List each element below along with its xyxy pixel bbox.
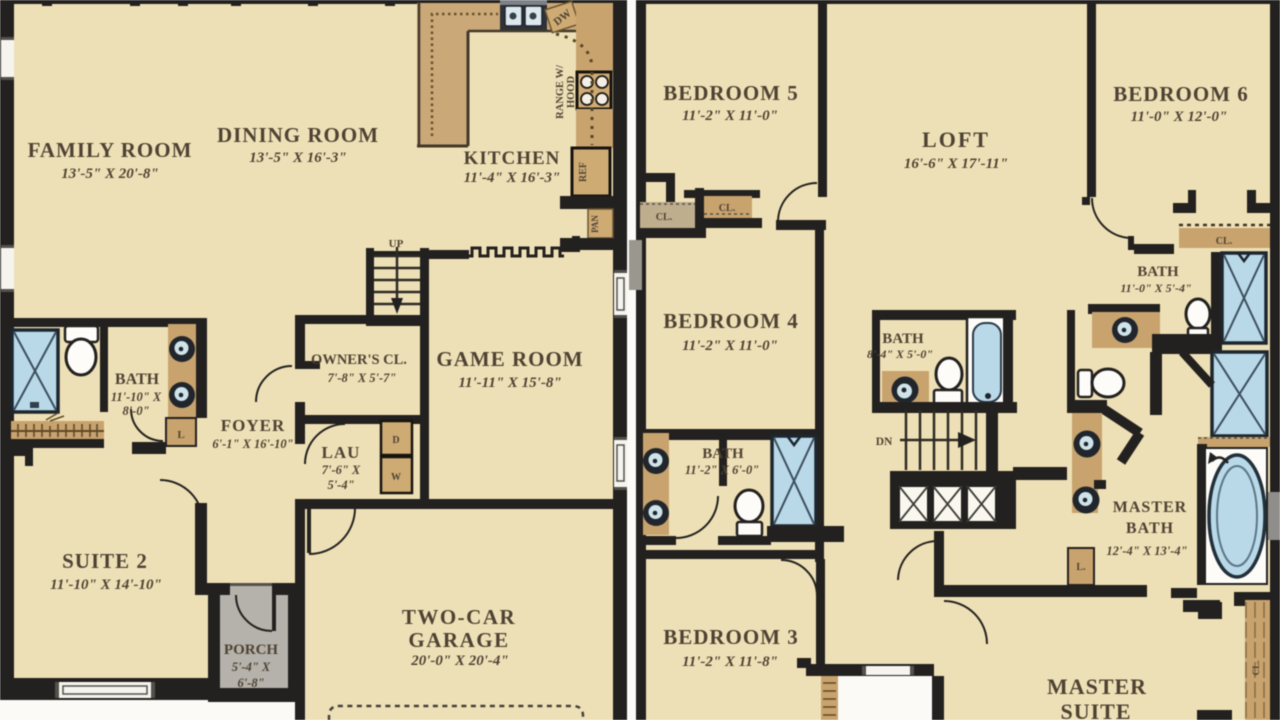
svg-text:BATH: BATH <box>1137 264 1179 280</box>
svg-text:REF: REF <box>578 162 589 182</box>
svg-text:L: L <box>177 429 184 441</box>
svg-text:CL.: CL. <box>719 203 736 214</box>
svg-text:BEDROOM 5: BEDROOM 5 <box>663 81 799 105</box>
svg-text:OWNER'S CL.: OWNER'S CL. <box>311 352 407 368</box>
svg-text:TWO-CAR: TWO-CAR <box>402 605 516 629</box>
svg-text:DINING ROOM: DINING ROOM <box>217 123 379 147</box>
svg-text:SUITE 2: SUITE 2 <box>62 549 148 573</box>
svg-text:DN: DN <box>876 436 893 448</box>
svg-text:HOOD: HOOD <box>566 76 577 109</box>
svg-text:MASTER: MASTER <box>1113 499 1187 516</box>
svg-text:RANGE W/: RANGE W/ <box>555 64 566 119</box>
svg-text:MASTER: MASTER <box>1047 674 1147 699</box>
svg-text:CL.: CL. <box>1216 236 1233 247</box>
svg-text:5'-4": 5'-4" <box>327 478 354 492</box>
svg-text:7'-8" X 5'-7": 7'-8" X 5'-7" <box>328 371 397 385</box>
svg-text:FOYER: FOYER <box>221 416 286 435</box>
svg-text:SUITE: SUITE <box>1060 699 1131 720</box>
svg-text:PORCH: PORCH <box>224 642 278 658</box>
svg-text:BEDROOM 4: BEDROOM 4 <box>663 309 799 333</box>
svg-text:5'-4" X: 5'-4" X <box>232 660 271 674</box>
svg-text:13'-5" X 20'-8": 13'-5" X 20'-8" <box>61 166 159 182</box>
svg-text:D: D <box>392 435 399 446</box>
svg-text:11'-0" X 12'-0": 11'-0" X 12'-0" <box>1131 109 1228 125</box>
svg-text:L.: L. <box>1076 562 1086 573</box>
svg-text:11'-2" X 11'-0": 11'-2" X 11'-0" <box>682 338 778 354</box>
svg-text:BATH: BATH <box>882 331 924 347</box>
svg-text:BATH: BATH <box>1126 520 1174 537</box>
svg-text:6'-8": 6'-8" <box>237 676 264 690</box>
svg-text:BEDROOM 6: BEDROOM 6 <box>1113 82 1249 106</box>
svg-text:6'-1" X 16'-10": 6'-1" X 16'-10" <box>212 437 293 451</box>
svg-text:GAME ROOM: GAME ROOM <box>436 347 583 371</box>
svg-text:BATH: BATH <box>702 446 744 462</box>
svg-text:13'-5" X 16'-3": 13'-5" X 16'-3" <box>249 150 347 166</box>
svg-text:7'-6" X: 7'-6" X <box>322 463 361 477</box>
svg-text:16'-6" X 17'-11": 16'-6" X 17'-11" <box>904 156 1008 172</box>
svg-text:8'-0": 8'-0" <box>122 404 149 418</box>
svg-text:FAMILY ROOM: FAMILY ROOM <box>28 138 193 162</box>
svg-text:BATH: BATH <box>115 371 160 388</box>
svg-text:CL.: CL. <box>656 212 673 223</box>
svg-text:8'-4" X 5'-0": 8'-4" X 5'-0" <box>867 347 933 361</box>
svg-text:LAU: LAU <box>322 443 361 462</box>
svg-text:12'-4" X 13'-4": 12'-4" X 13'-4" <box>1106 544 1187 558</box>
svg-text:11'-11" X 15'-8": 11'-11" X 15'-8" <box>458 375 561 391</box>
svg-text:KITCHEN: KITCHEN <box>464 148 561 169</box>
svg-text:20'-0" X 20'-4": 20'-0" X 20'-4" <box>410 653 509 669</box>
svg-text:W: W <box>391 472 401 483</box>
svg-text:BEDROOM 3: BEDROOM 3 <box>663 625 799 649</box>
svg-text:GARAGE: GARAGE <box>408 628 509 652</box>
svg-text:CL.: CL. <box>1251 661 1261 676</box>
svg-text:11'-0" X 5'-4": 11'-0" X 5'-4" <box>1120 281 1191 295</box>
svg-text:11'-2" X 11'-0": 11'-2" X 11'-0" <box>682 108 778 124</box>
svg-text:11'-4" X 16'-3": 11'-4" X 16'-3" <box>464 170 561 186</box>
svg-text:11'-2" X 6'-0": 11'-2" X 6'-0" <box>685 463 759 477</box>
svg-text:11'-2" X 11'-8": 11'-2" X 11'-8" <box>682 654 778 670</box>
svg-text:11'-10" X 14'-10": 11'-10" X 14'-10" <box>50 577 162 593</box>
svg-text:LOFT: LOFT <box>922 127 990 152</box>
svg-text:11'-10" X: 11'-10" X <box>111 390 162 404</box>
svg-text:PAN: PAN <box>590 215 600 233</box>
svg-text:UP: UP <box>389 238 404 250</box>
